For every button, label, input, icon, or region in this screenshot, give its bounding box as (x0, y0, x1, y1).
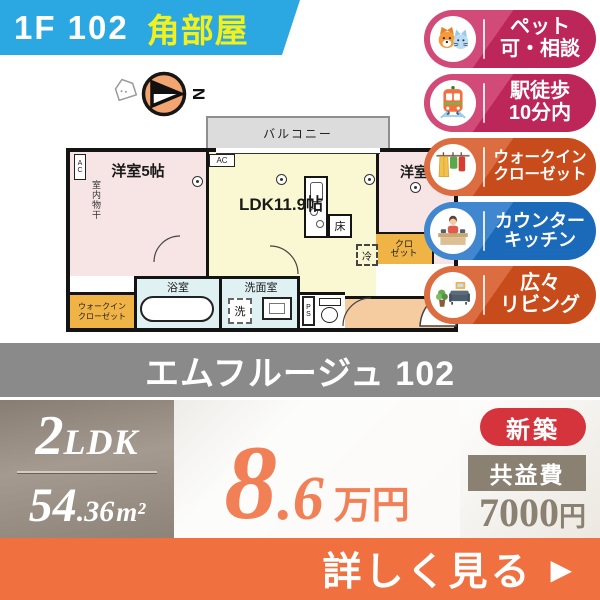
toilet-icon (319, 298, 341, 325)
details-cta-button[interactable]: 詳しく見る ▶ (0, 538, 600, 600)
feature-station-line1: 駅徒歩 (510, 81, 570, 103)
divider (483, 147, 485, 187)
details-row: 2 LDK 54 .36 m² 8 .6 万円 新築 共益費 7000 円 (0, 400, 600, 538)
fee-amount: 7000 (479, 493, 559, 533)
layout-area-block: 2 LDK 54 .36 m² (0, 400, 174, 538)
layout-number: 2 (36, 408, 64, 464)
area-decimal: .36 (77, 497, 115, 527)
fee-unit: 円 (559, 504, 586, 531)
new-construction-badge: 新築 (480, 408, 586, 446)
divider (483, 275, 485, 315)
compass-north-label: N (188, 88, 208, 100)
floor-plan: バルコニー ウォークイン クローゼット クロ ゼット 洗 PS 床 冷 AC A… (66, 116, 462, 336)
feature-pets-line1: ペット (510, 17, 570, 39)
unit-number: 1F 102 (14, 9, 129, 47)
fixture-symbol (276, 174, 287, 185)
building-name: エムフルージュ 102 (145, 346, 455, 395)
counter-kitchen-icon (430, 208, 476, 254)
common-fee-label: 共益費 (468, 455, 586, 491)
area-integer: 54 (29, 482, 77, 530)
ac-unit-ldk: AC (209, 154, 235, 167)
feature-walkin-closet: ウォークイン クローゼット (424, 138, 596, 196)
room-ldk-label: LDK11.9帖 (206, 190, 356, 215)
feature-badges: ペット 可・相談 駅徒歩 10分内 (424, 10, 596, 330)
corner-room-label: 角部屋 (147, 4, 249, 52)
right-arrow-icon: ▶ (550, 553, 572, 586)
room-washroom-label: 洗面室 (222, 279, 300, 295)
feature-counter-kitchen: カウンター キッチン (424, 202, 596, 260)
feature-living-line2: リビング (500, 295, 580, 317)
house-doodle-icon (110, 74, 140, 109)
cta-label: 詳しく見る (322, 541, 532, 597)
compass-icon (140, 70, 188, 118)
building-name-band: エムフルージュ 102 (0, 343, 600, 397)
divider (483, 211, 485, 251)
rent-unit: 万円 (334, 486, 410, 528)
feature-walkin-line2: クローゼット (493, 167, 586, 184)
rent-decimal: .6 (277, 472, 324, 528)
refrigerator-space: 冷 (356, 244, 378, 266)
laundry-space: 洗 (228, 298, 252, 324)
room-west-left-label: 洋室5帖 (74, 160, 202, 181)
living-room-icon (430, 272, 476, 318)
feature-kitchen-line2: キッチン (504, 231, 576, 250)
feature-kitchen-line1: カウンター (495, 212, 585, 231)
divider (483, 19, 485, 59)
pets-icon (430, 16, 476, 62)
area-unit: m² (116, 499, 145, 526)
room-bath-label: 浴室 (134, 279, 222, 295)
train-icon (430, 80, 476, 126)
pipe-space: PS (302, 296, 315, 326)
feature-station: 駅徒歩 10分内 (424, 74, 596, 132)
divider (17, 471, 157, 473)
rent-integer: 8 (224, 438, 277, 528)
floor-storage: 床 (328, 214, 352, 238)
vanity-sink (262, 297, 292, 320)
indoor-drying-label: 室内物干 (90, 180, 103, 220)
layout-type: LDK (64, 424, 139, 460)
feature-living-line1: 広々 (520, 273, 560, 295)
balcony-door (216, 148, 380, 154)
divider (483, 83, 485, 123)
feature-station-line2: 10分内 (509, 103, 571, 125)
feature-pets: ペット 可・相談 (424, 10, 596, 68)
feature-living: 広々 リビング (424, 266, 596, 324)
bathtub (140, 296, 214, 322)
feature-walkin-line1: ウォークイン (493, 150, 586, 167)
walkin-closet-icon (430, 144, 476, 190)
unit-banner: 1F 102 角部屋 (0, 0, 300, 55)
feature-pets-line2: 可・相談 (500, 39, 580, 61)
price-side-block: 新築 共益費 7000 円 (460, 400, 600, 538)
rent-block: 8 .6 万円 (174, 400, 460, 538)
fixture-symbol (364, 174, 375, 185)
fixture-symbol (410, 182, 421, 193)
